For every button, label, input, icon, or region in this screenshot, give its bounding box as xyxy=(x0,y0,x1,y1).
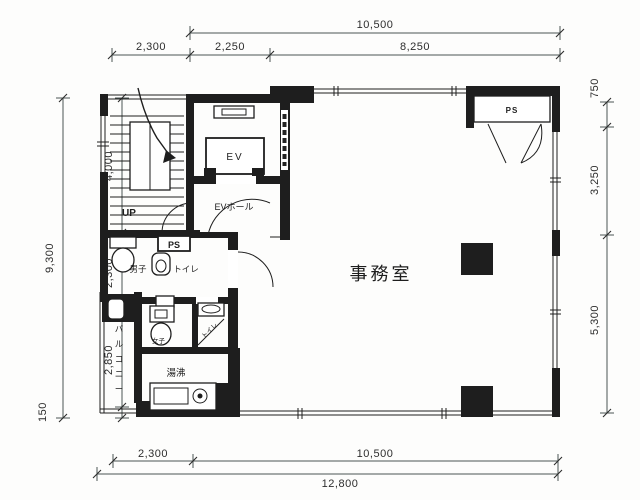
ev-door-post-left xyxy=(204,168,216,176)
wall-left-top xyxy=(100,94,108,116)
womens-toilet-label-right: トイレ xyxy=(201,322,220,341)
window-right-upper xyxy=(550,132,561,230)
dim-bottom-seg1: 2,300 xyxy=(138,448,168,460)
wall-top-jog xyxy=(270,86,314,103)
wall-ps-closet-top xyxy=(466,86,558,96)
wall-right-mid xyxy=(552,230,560,256)
dim-top-seg3: 8,250 xyxy=(400,41,430,53)
sink-counter xyxy=(150,383,216,410)
window-right-lower xyxy=(550,256,561,368)
tick-slashes xyxy=(93,457,562,478)
toilet-door-opening xyxy=(228,250,238,288)
toilet-tank xyxy=(110,237,136,248)
dimension-top: 10,500 2,300 2,250 8,250 xyxy=(108,19,564,62)
elevator-shaft: EV xyxy=(204,106,288,176)
ps-closet-label: PS xyxy=(506,106,519,115)
wall-ev-west xyxy=(186,94,194,184)
floor-plan-page: 10,500 2,300 2,250 8,250 2,300 10,500 12… xyxy=(0,0,640,500)
dim-left-seg4: 150 xyxy=(37,402,49,422)
wall-right-bottom xyxy=(552,368,560,417)
ps-shaft-label: PS xyxy=(168,240,180,250)
sink-burner-center xyxy=(198,394,203,399)
window-office-bottom xyxy=(238,408,552,419)
dimension-bottom: 2,300 10,500 12,800 xyxy=(93,448,562,490)
toilet-tank xyxy=(150,306,174,322)
staircase: UP xyxy=(110,88,184,224)
window-office-top xyxy=(314,89,466,93)
dim-left-seg3: 2,850 xyxy=(103,345,115,375)
dimension-line xyxy=(112,33,560,55)
wall-right-top xyxy=(552,86,560,132)
wall-stall-south xyxy=(142,347,238,354)
ev-machine-box xyxy=(214,106,254,118)
ev-door-opening xyxy=(216,176,256,184)
floor-plan-drawing: 10,500 2,300 2,250 8,250 2,300 10,500 12… xyxy=(0,0,640,500)
dim-right-seg2: 3,250 xyxy=(589,165,601,195)
balcony-door xyxy=(108,299,124,319)
womens-toilet: 女子 トイレ xyxy=(150,303,224,345)
stairs-up-label: UP xyxy=(122,208,136,219)
dim-bottom-seg2: 10,500 xyxy=(357,448,394,460)
elevator-label: EV xyxy=(226,152,243,163)
window-mullions-top xyxy=(334,86,456,96)
kitchenette-label: 湯沸 xyxy=(166,367,185,379)
tick-marks xyxy=(112,26,560,62)
office-label: 事務室 xyxy=(350,264,413,284)
womens-toilet-label-left: 女子 xyxy=(152,336,166,345)
wall-ps-closet-jamb xyxy=(466,86,474,128)
wall-stall-partition xyxy=(192,304,198,347)
column-bottom xyxy=(461,386,493,417)
dim-right-seg1: 750 xyxy=(589,78,601,98)
dim-top-seg2: 2,250 xyxy=(215,41,245,53)
mens-toilet-label-1: 男子 xyxy=(129,264,147,274)
office: 事務室 xyxy=(350,264,413,284)
wall-kitchenette-corner xyxy=(216,383,240,417)
dim-bottom-overall: 12,800 xyxy=(322,478,359,490)
wall-stair-east xyxy=(186,184,194,230)
kitchenette: 湯沸 xyxy=(150,367,216,410)
ev-door-post-right xyxy=(252,168,264,176)
ps-closet-doors xyxy=(488,124,542,163)
dimension-right: 750 3,250 5,300 xyxy=(589,78,614,417)
dim-top-seg1: 2,300 xyxy=(136,41,166,53)
toilet-entry-door-arc xyxy=(238,252,273,287)
dimension-line xyxy=(97,461,558,474)
wall-toilet-east xyxy=(228,232,238,348)
ps-closet: PS xyxy=(474,96,550,163)
ev-hall-label: EVホール xyxy=(214,202,253,212)
dim-right-seg3: 5,300 xyxy=(589,305,601,335)
column-middle xyxy=(461,243,493,275)
dim-left-overall: 9,300 xyxy=(44,243,56,273)
dim-top-overall: 10,500 xyxy=(357,19,394,31)
mens-toilet-label-2: トイレ xyxy=(173,264,199,274)
